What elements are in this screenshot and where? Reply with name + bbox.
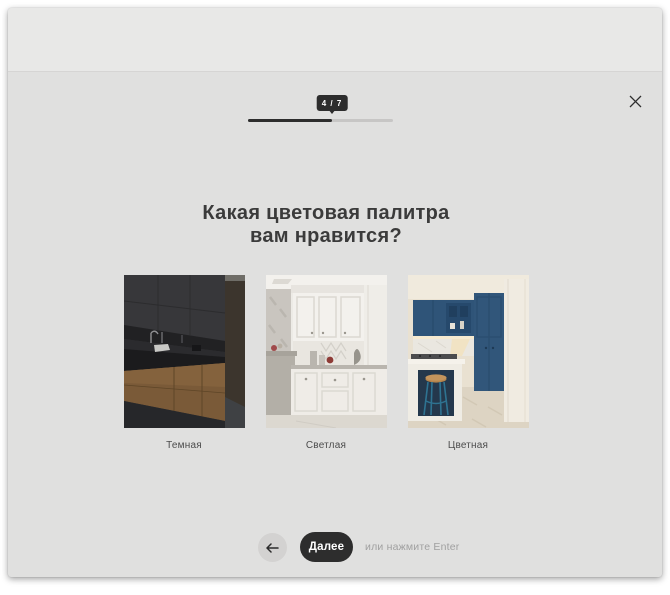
option-dark-palette[interactable]: Темная <box>124 275 245 451</box>
question-line-2: вам нравится? <box>8 225 644 248</box>
close-icon <box>629 95 642 108</box>
option-label: Темная <box>124 440 245 451</box>
progress-bar <box>248 119 393 122</box>
blue-kitchen-photo <box>408 275 529 428</box>
question-line-1: Какая цветовая палитра <box>8 202 644 225</box>
option-colorful-palette[interactable]: Цветная <box>408 275 529 451</box>
back-button[interactable] <box>258 533 287 562</box>
enter-hint: или нажмите Enter <box>365 535 459 559</box>
next-button[interactable]: Далее <box>300 532 353 562</box>
question-title: Какая цветовая палитра вам нравится? <box>8 202 644 248</box>
progress-fill <box>248 119 332 122</box>
arrow-left-icon <box>266 543 279 553</box>
dark-kitchen-photo <box>124 275 245 428</box>
top-banner <box>8 8 662 72</box>
options-row: Темная <box>8 275 644 451</box>
light-kitchen-photo <box>266 275 387 428</box>
option-label: Светлая <box>266 440 387 451</box>
close-button[interactable] <box>619 85 651 117</box>
progress-badge-pointer <box>328 109 336 114</box>
option-light-palette[interactable]: Светлая <box>266 275 387 451</box>
option-label: Цветная <box>408 440 529 451</box>
quiz-modal: 4 / 7 Какая цветовая палитра вам нравитс… <box>8 8 662 577</box>
